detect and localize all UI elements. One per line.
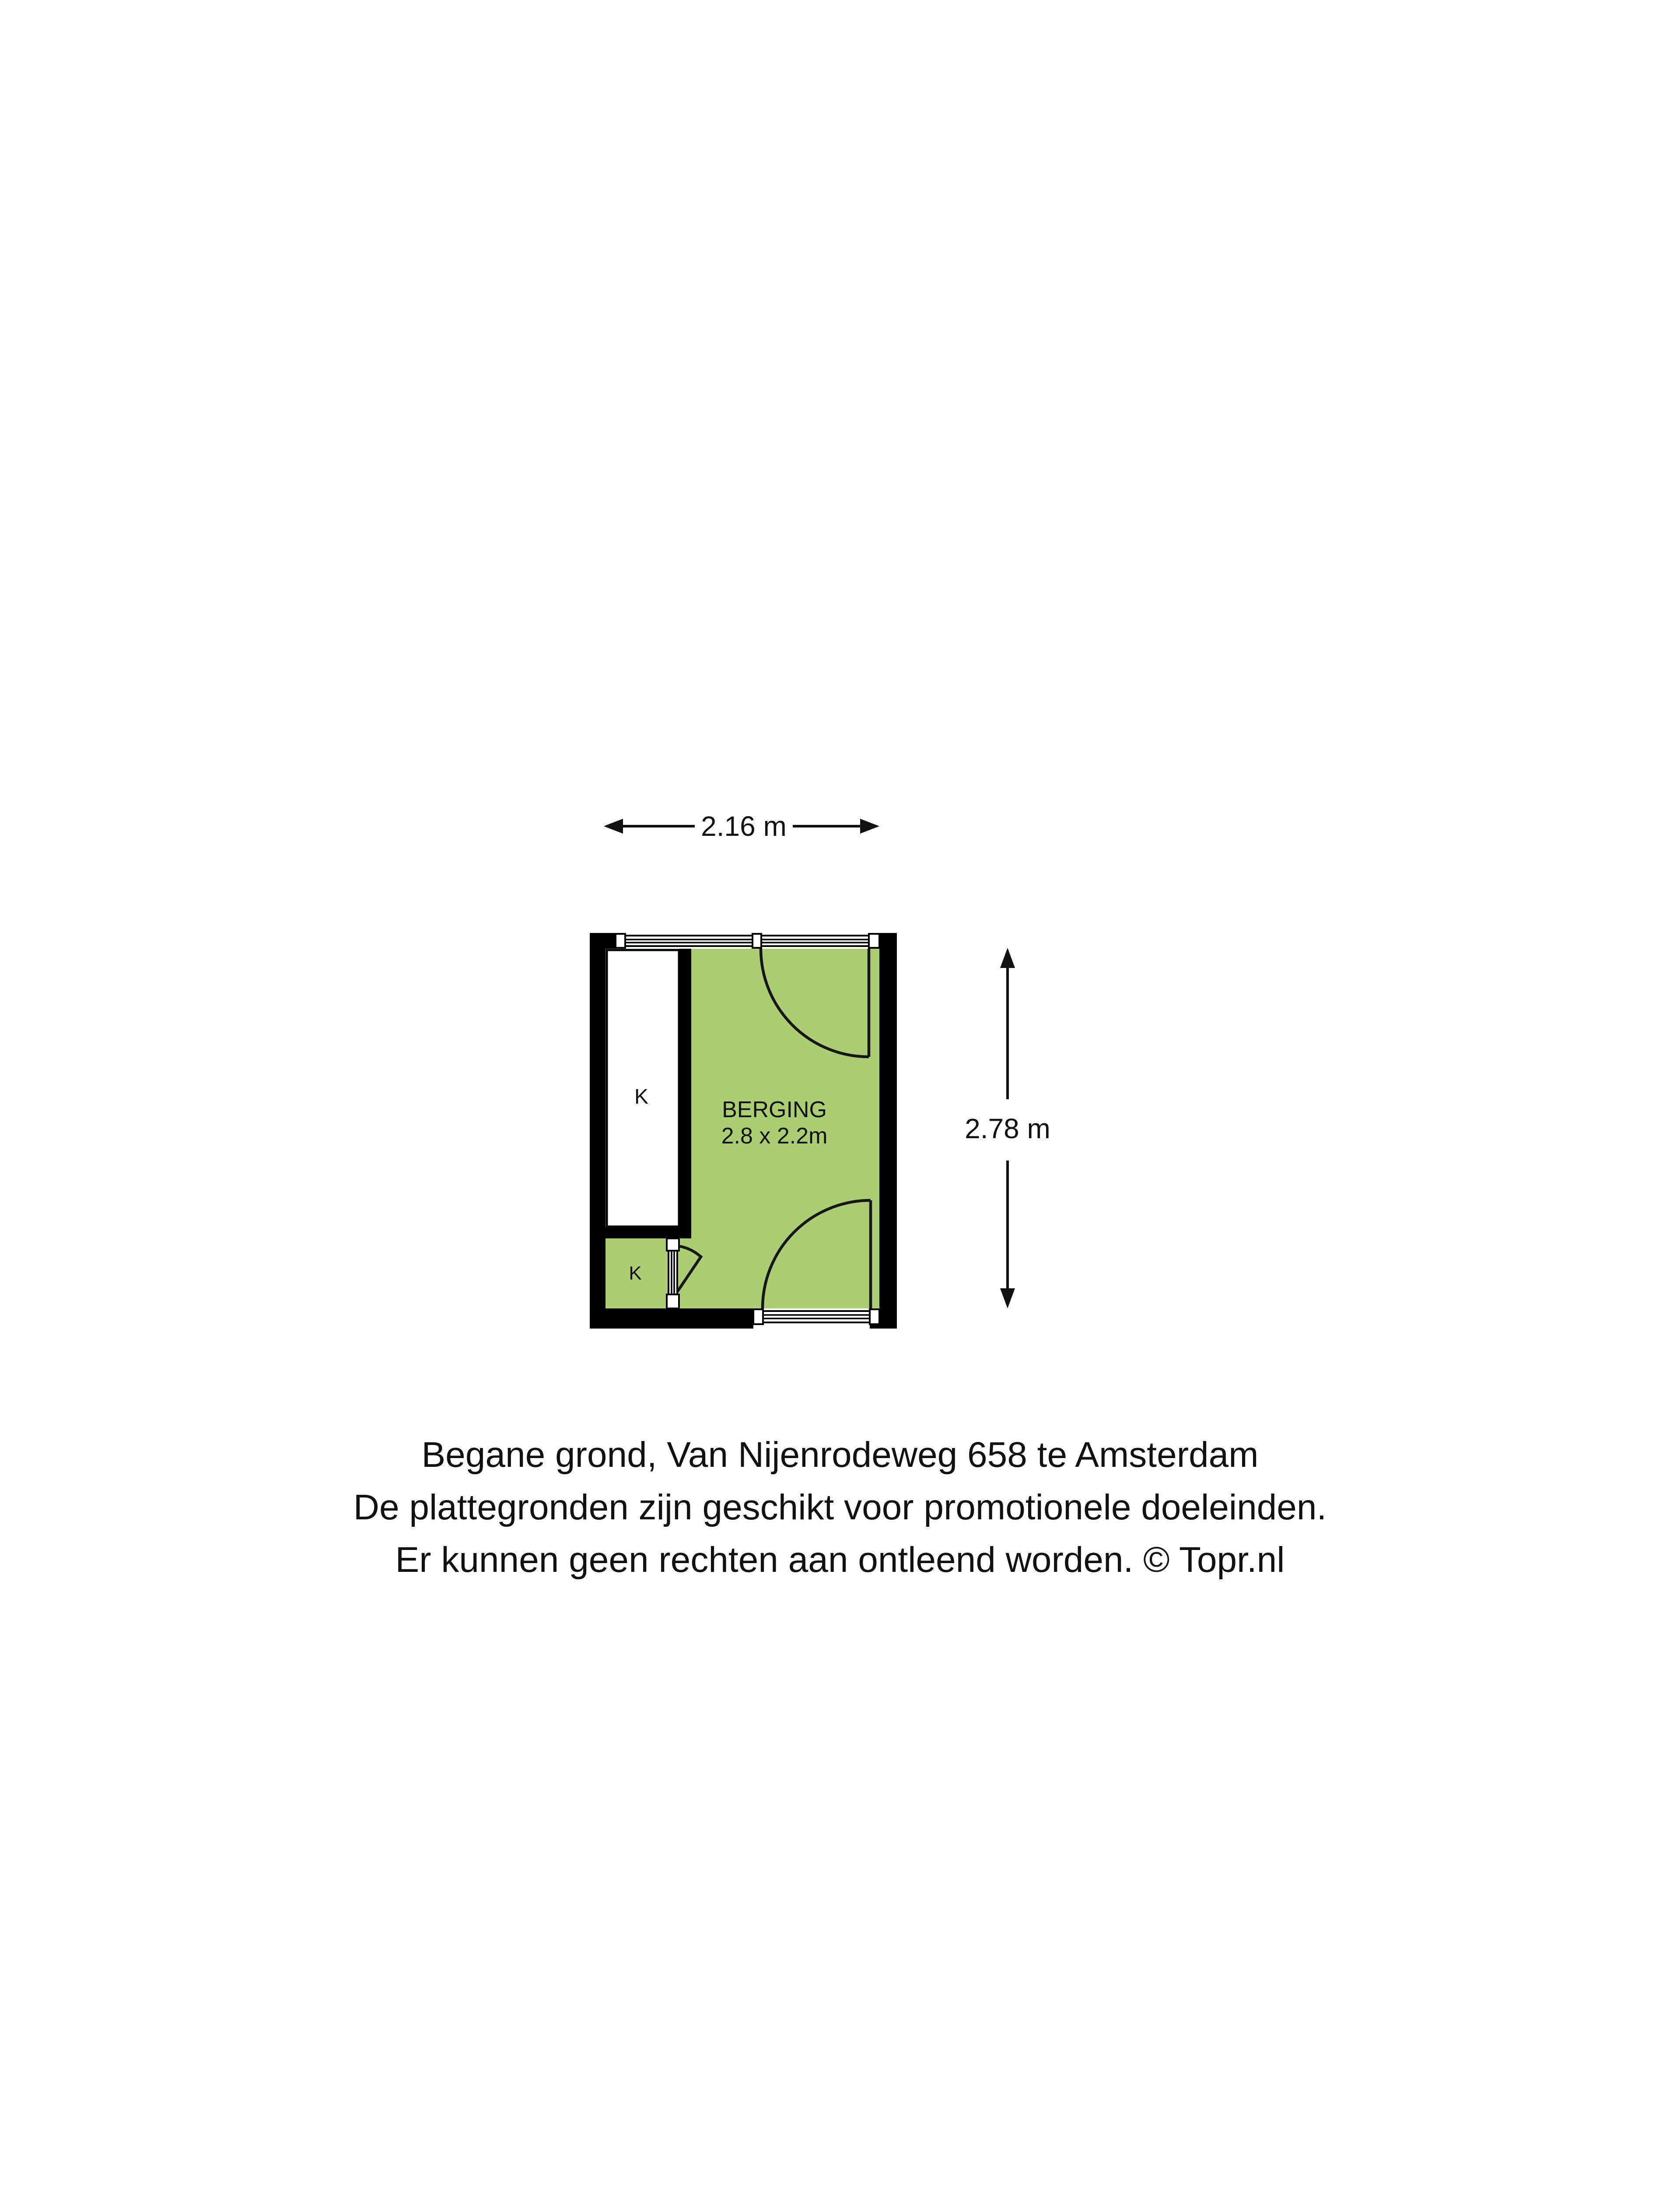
height-dimension-label: 2.78 m: [965, 1113, 1050, 1144]
wall-top-left-corner: [590, 933, 616, 949]
floor-plan: K K BERGING 2.8 x 2.2m: [590, 933, 897, 1329]
window-cap: [753, 1309, 763, 1324]
window: [763, 1311, 870, 1322]
floorplan-canvas: K K BERGING 2.8 x 2.2m 2.16 m 2.78 m Beg…: [0, 0, 1680, 2188]
width-dimension: 2.16 m: [604, 810, 879, 842]
arrow-right-icon: [860, 819, 879, 834]
window-left: [625, 936, 752, 946]
window-divider: [752, 934, 761, 948]
arrow-left-icon: [604, 819, 623, 834]
height-dimension: 2.78 m: [965, 948, 1050, 1308]
bottom-window-strip: [753, 1309, 879, 1324]
window-right: [761, 936, 869, 946]
arrow-down-icon: [1000, 1288, 1015, 1308]
top-window-strip: [616, 934, 879, 948]
window-cap: [870, 1309, 879, 1324]
room-name-label: BERGING: [722, 1097, 827, 1122]
wall-right: [879, 933, 897, 1329]
arrow-up-icon: [1000, 948, 1015, 968]
door-post-top: [667, 1238, 679, 1251]
wall-bottom-left: [590, 1308, 753, 1329]
caption-line-2: De plattegronden zijn geschikt voor prom…: [353, 1487, 1327, 1527]
wall-left: [590, 933, 605, 1329]
small-closet-label: K: [629, 1262, 641, 1284]
wall-closet-bottom: [590, 1227, 691, 1238]
caption-line-1: Begane grond, Van Nijenrodeweg 658 te Am…: [421, 1435, 1258, 1475]
caption: Begane grond, Van Nijenrodeweg 658 te Am…: [353, 1435, 1327, 1580]
door-leaf-strip: [668, 1251, 677, 1294]
window-cap: [616, 934, 625, 948]
wall-closet-right: [679, 949, 691, 1238]
closet-label: K: [634, 1085, 648, 1108]
room-size-label: 2.8 x 2.2m: [721, 1123, 828, 1149]
floorplan-page: K K BERGING 2.8 x 2.2m 2.16 m 2.78 m Beg…: [0, 0, 1680, 2188]
caption-line-3: Er kunnen geen rechten aan ontleend word…: [395, 1540, 1285, 1580]
door-post-bottom: [667, 1294, 679, 1308]
width-dimension-label: 2.16 m: [701, 810, 787, 842]
window-cap: [869, 934, 879, 948]
